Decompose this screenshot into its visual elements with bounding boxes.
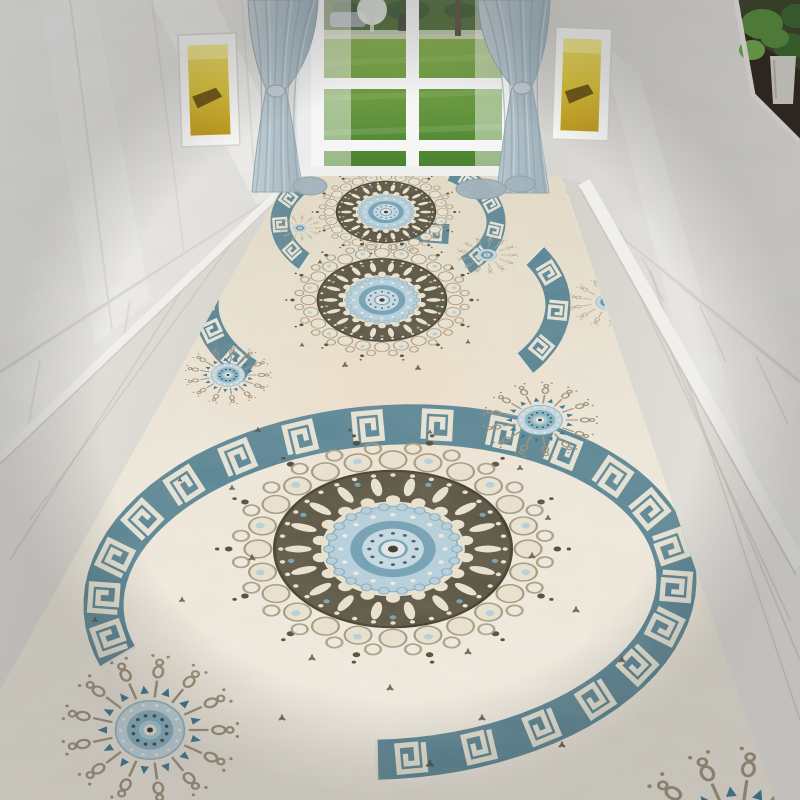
hallway-rug-photo — [0, 0, 800, 800]
scene-canvas — [0, 0, 800, 800]
vignette — [0, 0, 800, 800]
